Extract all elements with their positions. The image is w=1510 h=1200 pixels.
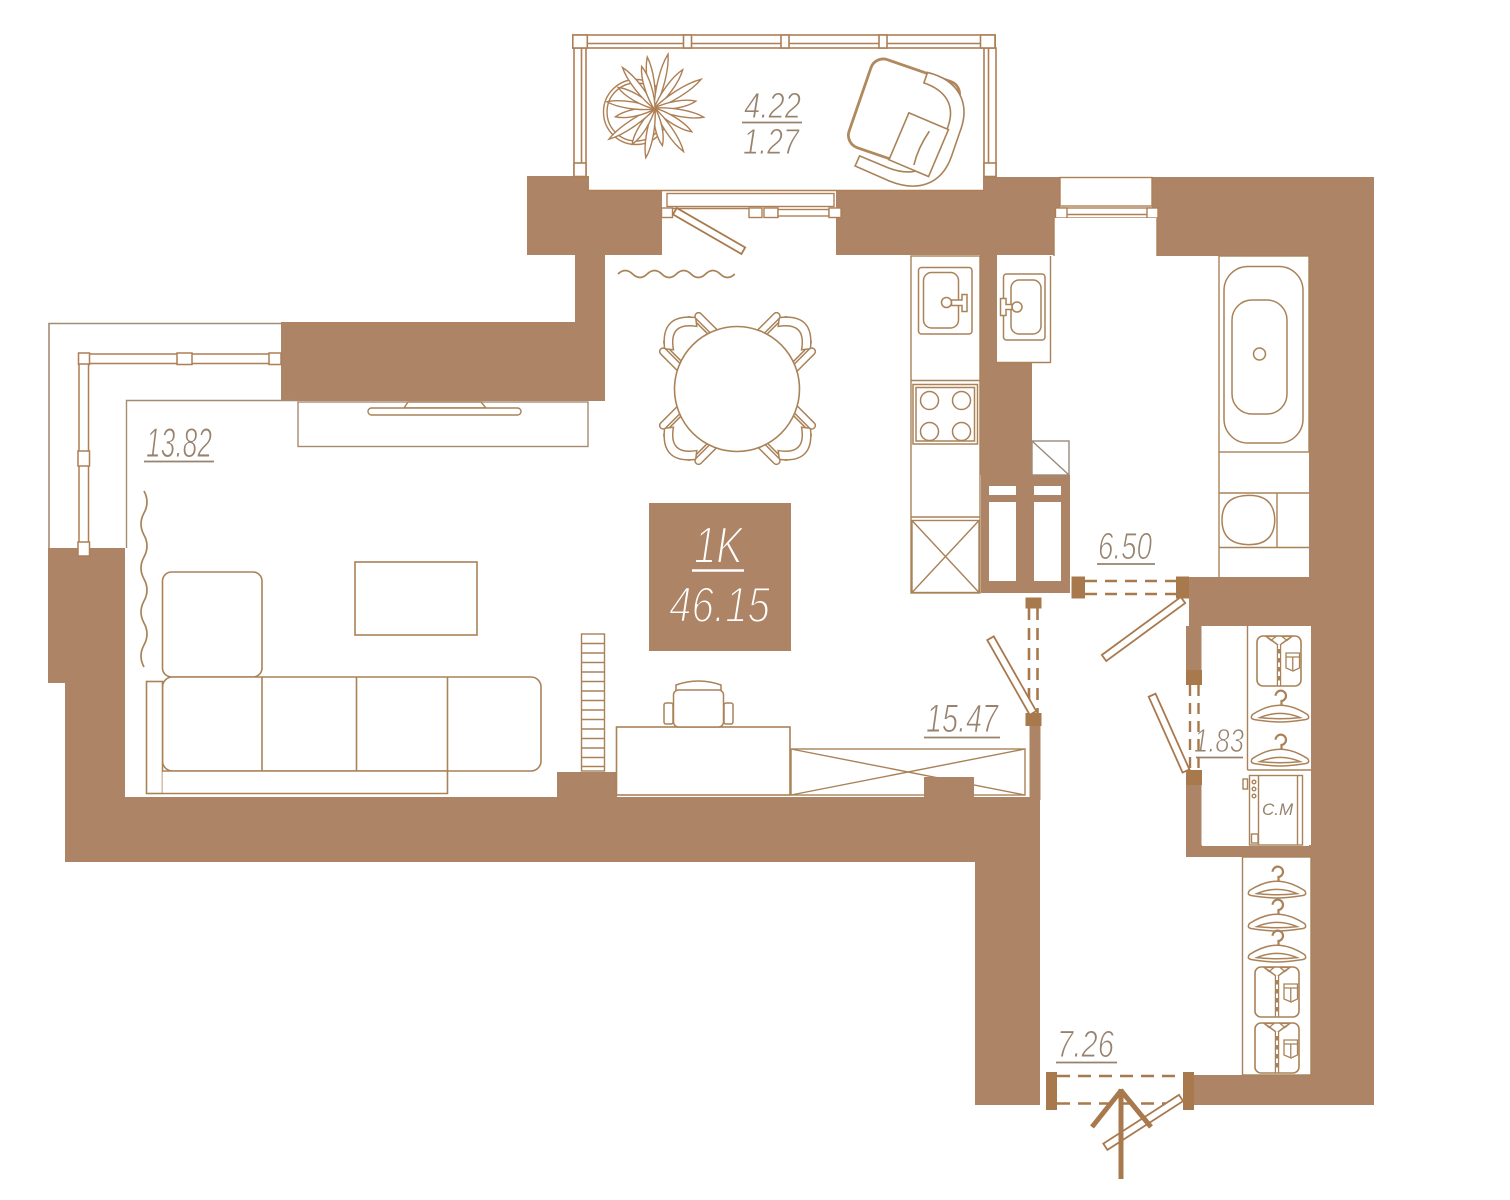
svg-text:1.83: 1.83 bbox=[1194, 722, 1244, 759]
svg-text:46.15: 46.15 bbox=[669, 577, 770, 633]
svg-text:15.47: 15.47 bbox=[926, 697, 999, 741]
svg-text:4.22: 4.22 bbox=[744, 85, 801, 126]
svg-text:7.26: 7.26 bbox=[1057, 1024, 1115, 1066]
svg-text:1.27: 1.27 bbox=[743, 121, 801, 162]
svg-text:13.82: 13.82 bbox=[146, 419, 212, 466]
svg-text:6.50: 6.50 bbox=[1098, 526, 1152, 568]
svg-text:1K: 1K bbox=[694, 517, 745, 575]
svg-text:С.М: С.М bbox=[1262, 800, 1294, 819]
